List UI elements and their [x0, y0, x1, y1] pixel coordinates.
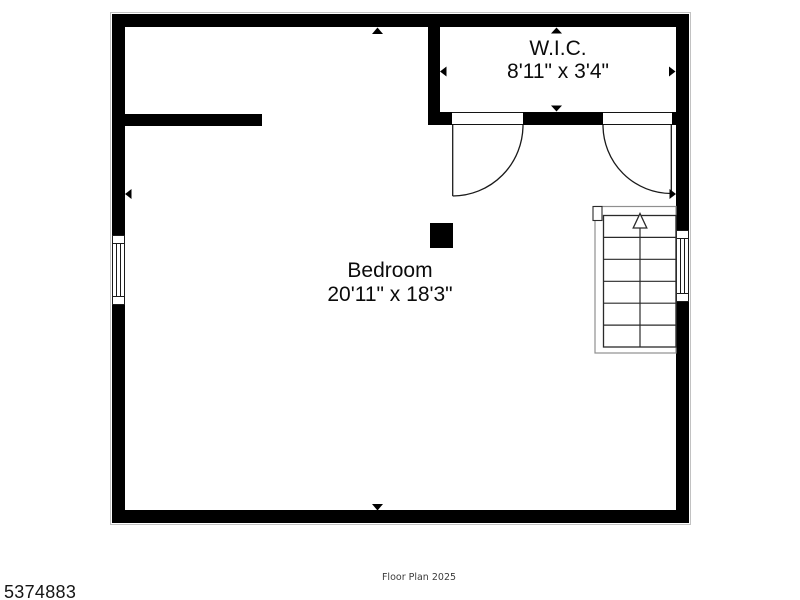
- bedroom-measure-arrow-down-icon: [372, 504, 383, 511]
- stair-newel-post: [593, 207, 602, 221]
- wic-measure-arrow-down-icon: [551, 106, 562, 112]
- wic-room-name: W.I.C.: [440, 37, 676, 60]
- staircase: [593, 207, 676, 354]
- bedroom-room-dimensions: 20'11" x 18'3": [240, 283, 540, 307]
- door-swing-left: [453, 125, 523, 196]
- plan-caption: Floor Plan 2025: [319, 572, 519, 583]
- bedroom-room-name: Bedroom: [240, 259, 540, 283]
- wic-room-dimensions: 8'11" x 3'4": [440, 60, 676, 83]
- wic-measure-arrow-up-icon: [551, 28, 562, 34]
- bedroom-label: Bedroom 20'11" x 18'3": [240, 259, 540, 307]
- bedroom-measure-arrow-left-icon: [125, 189, 132, 199]
- floor-plan-page: W.I.C. 8'11" x 3'4" Bedroom 20'11" x 18'…: [0, 0, 800, 600]
- bedroom-measure-arrow-up-icon: [372, 28, 383, 35]
- listing-id: 5374883: [4, 582, 76, 600]
- bedroom-measure-arrow-right-icon: [670, 189, 677, 199]
- stair-treads: [604, 228, 677, 347]
- wic-label: W.I.C. 8'11" x 3'4": [440, 37, 676, 83]
- door-swing-right: [603, 125, 671, 194]
